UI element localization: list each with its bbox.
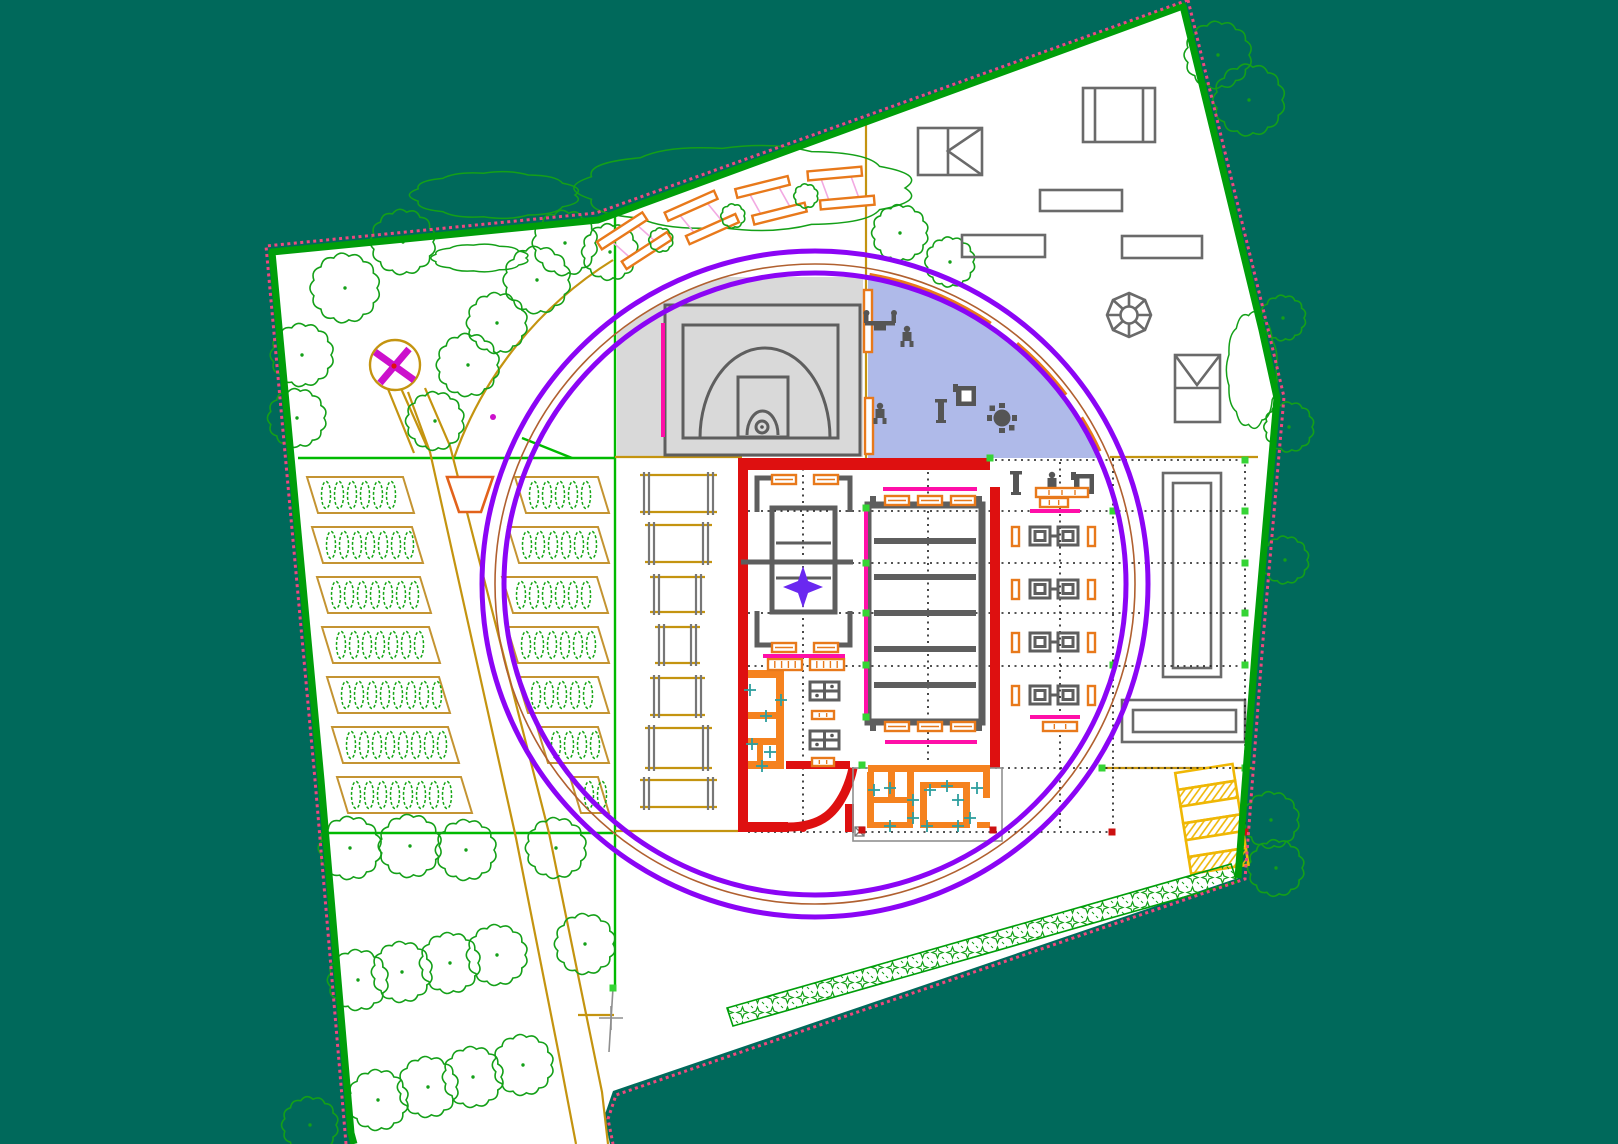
gym-door-icon (1012, 686, 1019, 705)
gym-door-icon (1088, 633, 1095, 652)
site-plan-drawing (0, 0, 1618, 1144)
survey-node-green (863, 560, 870, 567)
red-column (799, 824, 807, 832)
survey-node-green (1242, 610, 1249, 617)
ticket-rack-icon (768, 659, 802, 670)
garden-bed (502, 577, 608, 613)
survey-node-red (859, 827, 866, 834)
terrace-gate-2 (865, 398, 873, 454)
survey-node-green (1242, 508, 1249, 515)
red-wall-right (990, 487, 1000, 768)
red-wall-left (738, 458, 748, 832)
survey-node-green (863, 662, 870, 669)
gym-door-icon (1012, 633, 1019, 652)
pergola-table (640, 780, 717, 807)
ticket-rack-icon (812, 711, 834, 719)
magenta-node (490, 414, 496, 420)
ticket-rack-icon (1040, 498, 1068, 507)
garden-bed (507, 627, 609, 663)
gym-door-icon (1088, 686, 1095, 705)
garden-bed (307, 477, 414, 513)
survey-node-green (1242, 560, 1249, 567)
survey-node-green (610, 985, 617, 992)
gym-door-icon (1012, 580, 1019, 599)
gym-door-icon (1088, 580, 1095, 599)
ticket-rack-icon (1043, 722, 1077, 731)
survey-node-green (1242, 662, 1249, 669)
survey-node-green (1099, 765, 1106, 772)
ticket-rack-icon (810, 659, 844, 670)
survey-node-green (863, 714, 870, 721)
red-wall-bottom (738, 822, 788, 832)
survey-node-green (859, 762, 866, 769)
gym-door-icon (1012, 527, 1019, 546)
pergola-table (655, 627, 700, 663)
survey-node-green (863, 610, 870, 617)
pergola-table (640, 475, 717, 512)
survey-node-green (1242, 457, 1249, 464)
cad-canvas (0, 0, 1618, 1144)
gym-door-icon (1088, 527, 1095, 546)
ticket-rack-icon (812, 758, 834, 766)
survey-node-red (990, 827, 997, 834)
strength-station-icon (953, 384, 976, 406)
survey-node-red (1109, 829, 1116, 836)
survey-node-green (987, 455, 994, 462)
survey-node-green (863, 505, 870, 512)
red-wall-top (742, 458, 990, 470)
